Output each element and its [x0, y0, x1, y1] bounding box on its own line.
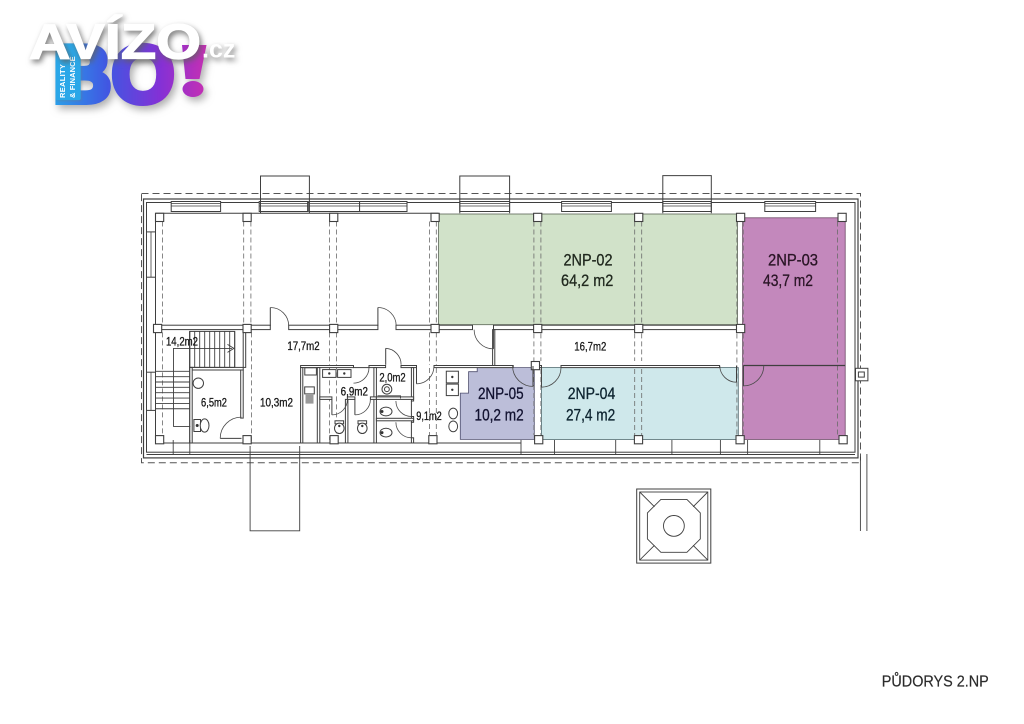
svg-text:2NP-04: 2NP-04: [568, 385, 616, 403]
svg-text:2NP-02: 2NP-02: [564, 252, 613, 270]
svg-text:PŮDORYS 2.NP: PŮDORYS 2.NP: [882, 672, 989, 691]
svg-text:16,7m2: 16,7m2: [574, 339, 606, 353]
svg-text:14,2m2: 14,2m2: [166, 334, 198, 348]
svg-text:27,4 m2: 27,4 m2: [566, 407, 615, 425]
svg-text:10,2 m2: 10,2 m2: [475, 407, 524, 425]
svg-text:9,1m2: 9,1m2: [416, 409, 442, 423]
svg-text:.cz: .cz: [202, 36, 235, 64]
svg-text:43,7 m2: 43,7 m2: [763, 272, 813, 290]
svg-text:10,3m2: 10,3m2: [260, 395, 293, 409]
svg-text:6,9m2: 6,9m2: [341, 385, 369, 399]
svg-text:2,0m2: 2,0m2: [379, 371, 406, 385]
svg-text:64,2 m2: 64,2 m2: [561, 272, 613, 290]
svg-text:6,5m2: 6,5m2: [201, 395, 227, 409]
svg-text:AVÍZO: AVÍZO: [29, 15, 201, 70]
svg-text:17,7m2: 17,7m2: [287, 339, 320, 353]
svg-text:2NP-05: 2NP-05: [478, 385, 524, 403]
svg-text:2NP-03: 2NP-03: [768, 252, 818, 270]
